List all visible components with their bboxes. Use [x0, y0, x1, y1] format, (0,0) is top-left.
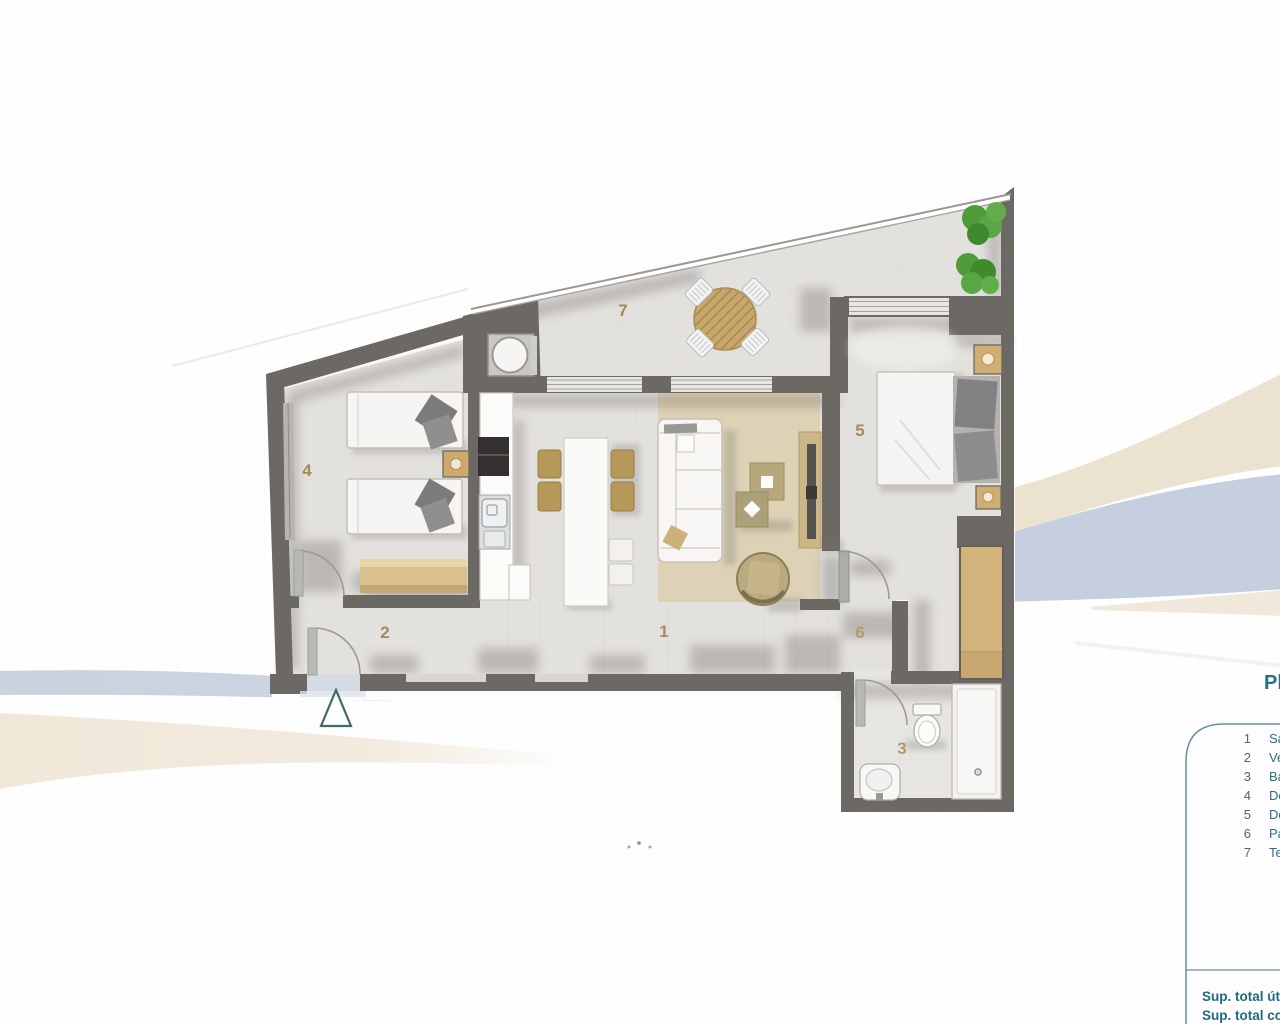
svg-text:Planta tipo: Planta tipo: [1264, 672, 1280, 694]
svg-text:2: 2: [1244, 750, 1251, 765]
svg-text:7: 7: [1244, 845, 1251, 860]
svg-text:Baño: Baño: [1269, 769, 1280, 784]
svg-text:Salón-Cocina: Salón-Cocina: [1269, 731, 1280, 746]
svg-text:6: 6: [855, 623, 864, 642]
svg-text:3: 3: [897, 739, 906, 758]
svg-text:Terraza: Terraza: [1269, 845, 1280, 860]
svg-text:7: 7: [618, 301, 627, 320]
svg-text:1: 1: [659, 622, 668, 641]
svg-text:6: 6: [1244, 826, 1251, 841]
svg-text:Dormitorio: Dormitorio: [1269, 788, 1280, 803]
svg-text:Sup. total útil: Sup. total útil: [1202, 989, 1280, 1004]
svg-text:5: 5: [855, 421, 864, 440]
svg-text:2: 2: [380, 623, 389, 642]
svg-text:5: 5: [1244, 807, 1251, 822]
svg-text:4: 4: [302, 461, 312, 480]
svg-text:4: 4: [1244, 788, 1251, 803]
svg-text:Pasillo: Pasillo: [1269, 826, 1280, 841]
svg-text:Vestíbulo: Vestíbulo: [1269, 750, 1280, 765]
svg-text:Sup. total construida: Sup. total construida: [1202, 1008, 1280, 1023]
svg-text:3: 3: [1244, 769, 1251, 784]
svg-text:1: 1: [1244, 731, 1251, 746]
svg-text:Dormitorio: Dormitorio: [1269, 807, 1280, 822]
